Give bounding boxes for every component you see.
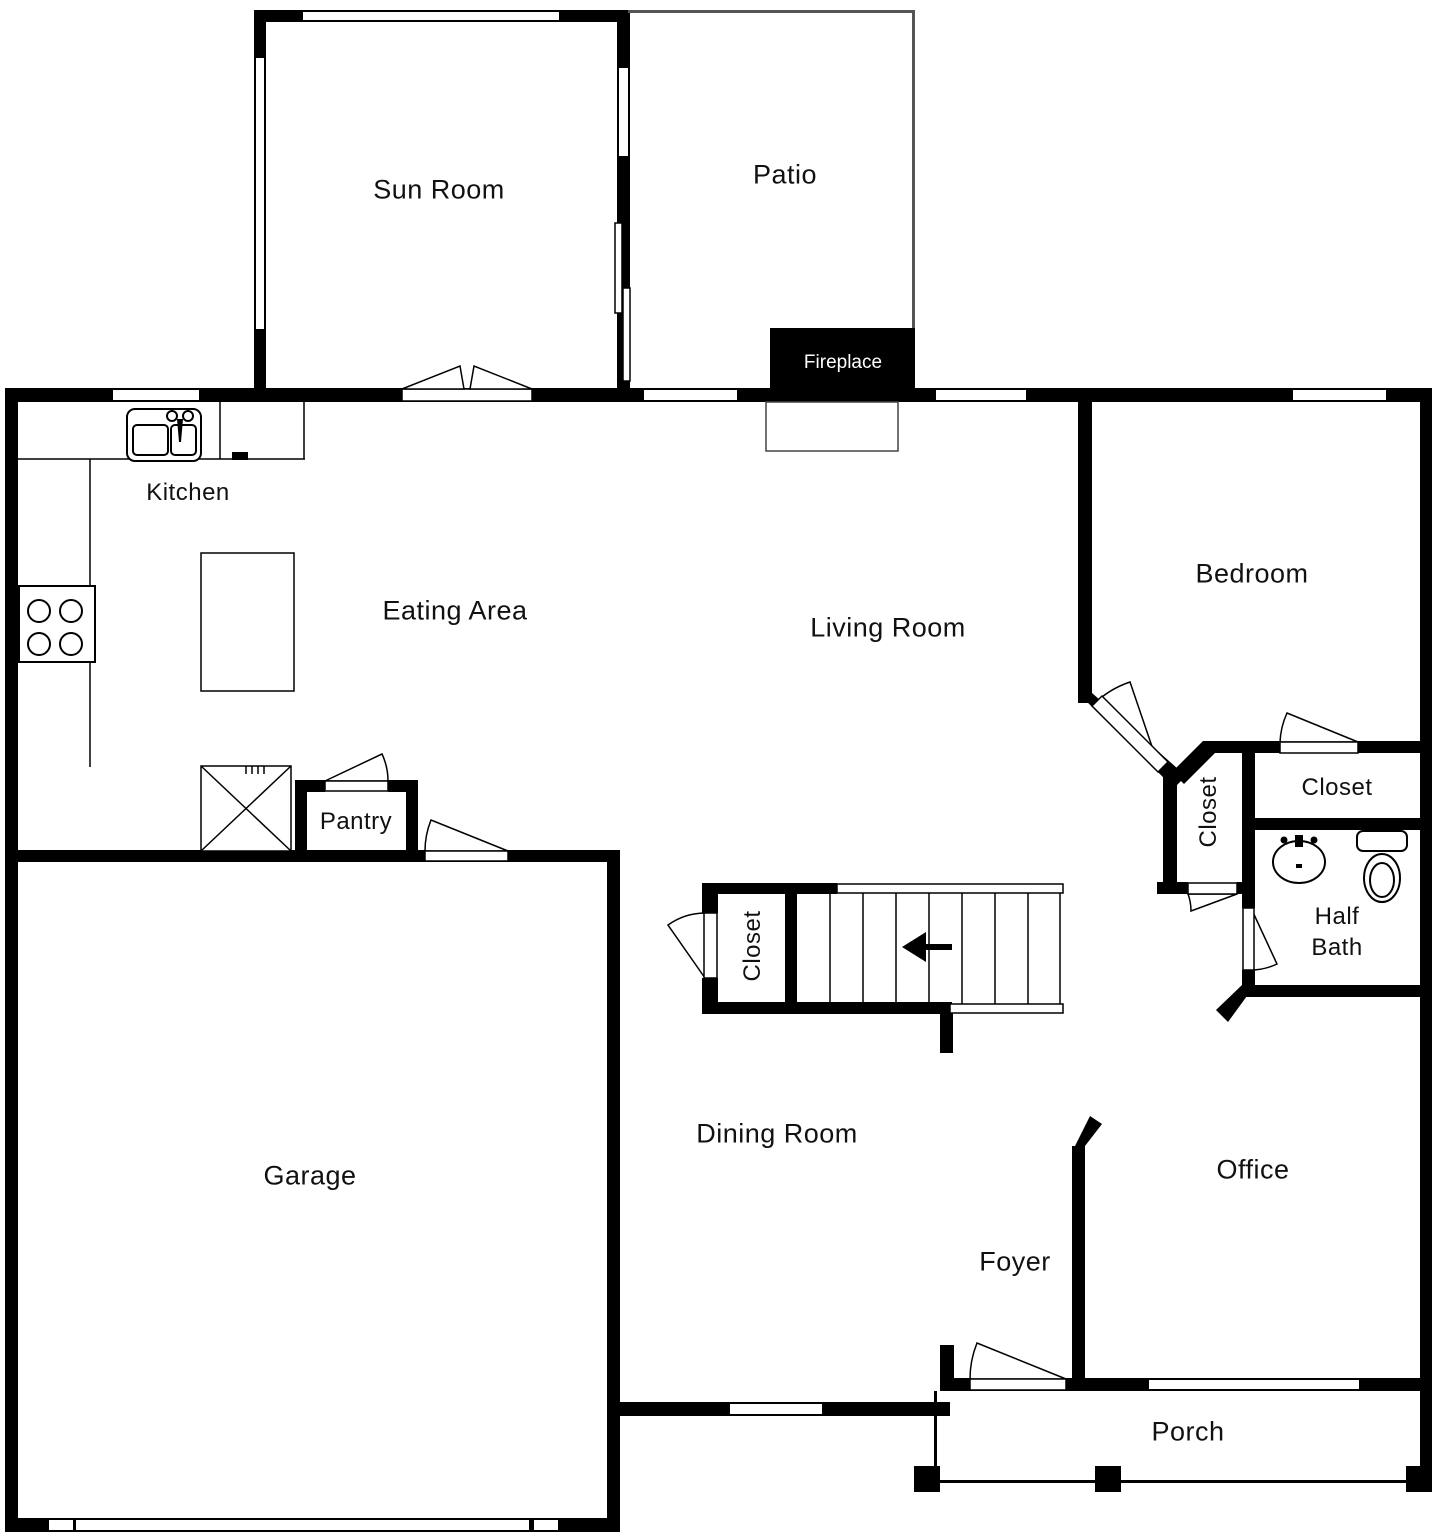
room-label-half-bath: Half Bath xyxy=(1295,901,1379,963)
stairs-direction-arrow xyxy=(902,932,952,962)
fireplace-label: Fireplace xyxy=(804,352,882,374)
kitchen-island xyxy=(201,553,294,691)
room-label-foyer: Foyer xyxy=(979,1247,1051,1278)
bathroom-sink-fixture xyxy=(1273,836,1325,883)
toilet-fixture xyxy=(1357,831,1407,902)
room-label-sun-room: Sun Room xyxy=(373,175,505,206)
utility-cabinet xyxy=(201,766,291,851)
sun-room-windows xyxy=(255,11,629,330)
sun-room-walls xyxy=(254,10,630,402)
room-label-living-room: Living Room xyxy=(810,613,966,644)
floor-plan: Sun Room Patio Kitchen Eating Area Livin… xyxy=(0,0,1439,1536)
room-label-kitchen: Kitchen xyxy=(146,479,230,507)
room-label-garage: Garage xyxy=(263,1161,356,1192)
fireplace-hearth xyxy=(766,402,898,451)
room-label-dining-room: Dining Room xyxy=(696,1119,858,1150)
stove-fixture xyxy=(19,586,95,662)
room-label-hall-closet: Closet xyxy=(1195,776,1223,847)
garage-door xyxy=(75,1519,530,1531)
kitchen-sink-fixture xyxy=(127,409,201,461)
room-label-patio: Patio xyxy=(753,160,817,191)
room-label-porch: Porch xyxy=(1151,1417,1224,1448)
floor-plan-drawing xyxy=(0,0,1439,1536)
room-label-pantry: Pantry xyxy=(320,808,392,836)
doors xyxy=(325,366,1358,1390)
room-label-bedroom-closet: Closet xyxy=(1301,774,1372,802)
dishwasher-mark xyxy=(232,452,248,460)
room-label-bedroom: Bedroom xyxy=(1195,559,1308,590)
room-label-stair-closet: Closet xyxy=(739,910,767,981)
room-label-office: Office xyxy=(1216,1155,1289,1186)
room-label-eating-area: Eating Area xyxy=(382,596,527,627)
